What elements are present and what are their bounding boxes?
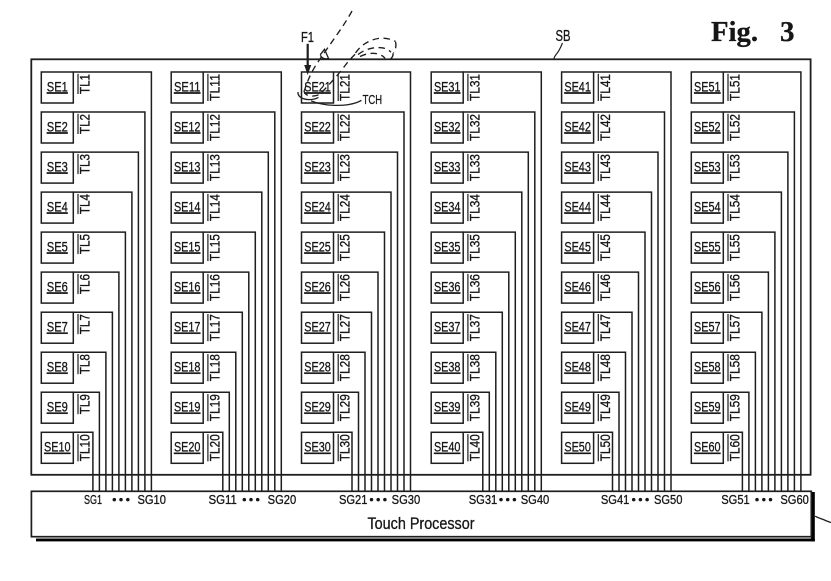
svg-text:TL7: TL7 — [77, 314, 93, 334]
svg-text:TL56: TL56 — [727, 274, 743, 301]
svg-text:SE60: SE60 — [694, 439, 721, 455]
svg-text:TL57: TL57 — [727, 314, 743, 341]
svg-text:TL33: TL33 — [466, 154, 482, 181]
svg-text:SE54: SE54 — [694, 198, 721, 214]
svg-text:TL15: TL15 — [206, 234, 222, 261]
svg-text:TL1: TL1 — [77, 74, 93, 94]
svg-text:SE16: SE16 — [174, 278, 201, 294]
svg-text:SE28: SE28 — [304, 359, 331, 375]
svg-text:SE42: SE42 — [564, 118, 591, 134]
svg-text:SE2: SE2 — [47, 118, 68, 134]
svg-text:TL17: TL17 — [206, 314, 222, 341]
svg-text:SE11: SE11 — [174, 78, 201, 94]
svg-text:TL29: TL29 — [337, 394, 353, 421]
svg-text:SE32: SE32 — [434, 118, 461, 134]
svg-text:SE4: SE4 — [47, 198, 68, 214]
svg-text:TL22: TL22 — [337, 114, 353, 141]
svg-text:TL5: TL5 — [77, 234, 93, 254]
svg-text:SE49: SE49 — [564, 399, 591, 415]
svg-text:TL49: TL49 — [597, 394, 613, 421]
svg-text:TL13: TL13 — [206, 154, 222, 181]
svg-text:SE56: SE56 — [694, 278, 721, 294]
svg-text:SG31: SG31 — [469, 492, 498, 507]
svg-text:SE22: SE22 — [304, 118, 331, 134]
svg-text:SE25: SE25 — [304, 238, 331, 254]
svg-text:SE1: SE1 — [47, 78, 68, 94]
svg-text:TCH: TCH — [363, 92, 383, 107]
svg-text:SG21: SG21 — [339, 492, 368, 507]
svg-text:SE18: SE18 — [174, 359, 201, 375]
svg-text:TL25: TL25 — [337, 234, 353, 261]
svg-text:SE7: SE7 — [47, 319, 68, 335]
svg-text:F1: F1 — [301, 30, 314, 46]
svg-text:SE55: SE55 — [694, 238, 721, 254]
svg-text:SE27: SE27 — [304, 319, 331, 335]
svg-text:TL12: TL12 — [206, 114, 222, 141]
svg-text:TL26: TL26 — [337, 274, 353, 301]
svg-text:SE5: SE5 — [47, 238, 68, 254]
svg-text:TL38: TL38 — [466, 354, 482, 381]
svg-text:TL35: TL35 — [466, 234, 482, 261]
svg-text:SE52: SE52 — [694, 118, 721, 134]
svg-text:SE39: SE39 — [434, 399, 461, 415]
svg-text:TL28: TL28 — [337, 354, 353, 381]
svg-text:TL4: TL4 — [77, 194, 93, 214]
svg-text:SE31: SE31 — [434, 78, 461, 94]
svg-text:SE36: SE36 — [434, 278, 461, 294]
svg-text:TL45: TL45 — [597, 234, 613, 261]
svg-text:SE14: SE14 — [174, 198, 201, 214]
svg-text:SE44: SE44 — [564, 198, 591, 214]
svg-text:SG20: SG20 — [268, 492, 297, 507]
svg-text:SE29: SE29 — [304, 399, 331, 415]
svg-text:SG41: SG41 — [601, 492, 630, 507]
svg-text:TL24: TL24 — [337, 194, 353, 221]
svg-text:TL40: TL40 — [466, 434, 482, 461]
svg-text:TL27: TL27 — [337, 314, 353, 341]
svg-text:Fig.: Fig. — [711, 16, 758, 48]
svg-text:SE12: SE12 — [174, 118, 201, 134]
svg-text:SE20: SE20 — [174, 439, 201, 455]
svg-text:SE30: SE30 — [304, 439, 331, 455]
svg-text:TL9: TL9 — [77, 394, 93, 414]
svg-text:TL51: TL51 — [727, 74, 743, 101]
svg-text:TL31: TL31 — [466, 74, 482, 101]
svg-text:SE35: SE35 — [434, 238, 461, 254]
svg-text:TL30: TL30 — [337, 434, 353, 461]
svg-text:TL55: TL55 — [727, 234, 743, 261]
svg-text:TL41: TL41 — [597, 74, 613, 101]
svg-text:TL52: TL52 — [727, 114, 743, 141]
svg-text:SE45: SE45 — [564, 238, 591, 254]
svg-text:SE17: SE17 — [174, 319, 201, 335]
svg-text:SE46: SE46 — [564, 278, 591, 294]
svg-text:TL36: TL36 — [466, 274, 482, 301]
svg-text:SE26: SE26 — [304, 278, 331, 294]
svg-text:SE51: SE51 — [694, 78, 721, 94]
svg-text:TL23: TL23 — [337, 154, 353, 181]
svg-text:TL2: TL2 — [77, 114, 93, 134]
svg-text:TL54: TL54 — [727, 194, 743, 221]
svg-text:TL3: TL3 — [77, 154, 93, 174]
svg-text:SE8: SE8 — [47, 359, 68, 375]
svg-text:SE9: SE9 — [47, 399, 68, 415]
svg-text:TL42: TL42 — [597, 114, 613, 141]
svg-text:SE33: SE33 — [434, 158, 461, 174]
svg-text:TL59: TL59 — [727, 394, 743, 421]
svg-text:TL18: TL18 — [206, 354, 222, 381]
svg-text:SE38: SE38 — [434, 359, 461, 375]
svg-text:SG1: SG1 — [84, 492, 102, 507]
svg-text:TL8: TL8 — [77, 354, 93, 374]
svg-text:3: 3 — [780, 16, 795, 48]
svg-text:TL14: TL14 — [206, 194, 222, 221]
svg-text:TL19: TL19 — [206, 394, 222, 421]
svg-text:SE48: SE48 — [564, 359, 591, 375]
svg-text:SE13: SE13 — [174, 158, 201, 174]
svg-text:SE10: SE10 — [44, 439, 71, 455]
svg-text:TL16: TL16 — [206, 274, 222, 301]
svg-text:SE3: SE3 — [47, 158, 68, 174]
svg-text:SE43: SE43 — [564, 158, 591, 174]
svg-text:TL11: TL11 — [206, 74, 222, 101]
svg-text:TL34: TL34 — [466, 194, 482, 221]
svg-text:SE40: SE40 — [434, 439, 461, 455]
svg-text:SG10: SG10 — [137, 492, 166, 507]
svg-text:TL6: TL6 — [77, 274, 93, 294]
svg-text:TL20: TL20 — [206, 434, 222, 461]
svg-text:SG30: SG30 — [392, 492, 421, 507]
svg-text:TL39: TL39 — [466, 394, 482, 421]
svg-text:SE50: SE50 — [564, 439, 591, 455]
svg-text:SE37: SE37 — [434, 319, 461, 335]
svg-text:TL43: TL43 — [597, 154, 613, 181]
svg-text:SE47: SE47 — [564, 319, 591, 335]
svg-text:TL47: TL47 — [597, 314, 613, 341]
svg-text:TL32: TL32 — [466, 114, 482, 141]
svg-text:SE57: SE57 — [694, 319, 721, 335]
svg-text:TL58: TL58 — [727, 354, 743, 381]
svg-text:SB: SB — [556, 28, 571, 45]
svg-text:SE23: SE23 — [304, 158, 331, 174]
svg-text:TL53: TL53 — [727, 154, 743, 181]
svg-text:SE58: SE58 — [694, 359, 721, 375]
svg-text:TL60: TL60 — [727, 434, 743, 461]
svg-text:TL37: TL37 — [466, 314, 482, 341]
svg-text:SE41: SE41 — [564, 78, 591, 94]
svg-text:SE59: SE59 — [694, 399, 721, 415]
svg-text:SE24: SE24 — [304, 198, 331, 214]
svg-text:SE53: SE53 — [694, 158, 721, 174]
svg-text:TL50: TL50 — [597, 434, 613, 461]
svg-text:Touch Processor: Touch Processor — [368, 514, 475, 533]
svg-text:TL44: TL44 — [597, 194, 613, 221]
svg-text:SE19: SE19 — [174, 399, 201, 415]
svg-text:SE34: SE34 — [434, 198, 461, 214]
svg-text:SE15: SE15 — [174, 238, 201, 254]
svg-text:TL21: TL21 — [337, 74, 353, 101]
svg-text:SG50: SG50 — [654, 492, 683, 507]
svg-text:SG60: SG60 — [780, 492, 809, 507]
svg-text:TL10: TL10 — [77, 434, 93, 461]
svg-text:SG40: SG40 — [521, 492, 550, 507]
svg-text:TL46: TL46 — [597, 274, 613, 301]
svg-text:SG11: SG11 — [208, 492, 237, 507]
svg-text:SE6: SE6 — [47, 278, 68, 294]
svg-text:SG51: SG51 — [721, 492, 750, 507]
svg-text:TL48: TL48 — [597, 354, 613, 381]
